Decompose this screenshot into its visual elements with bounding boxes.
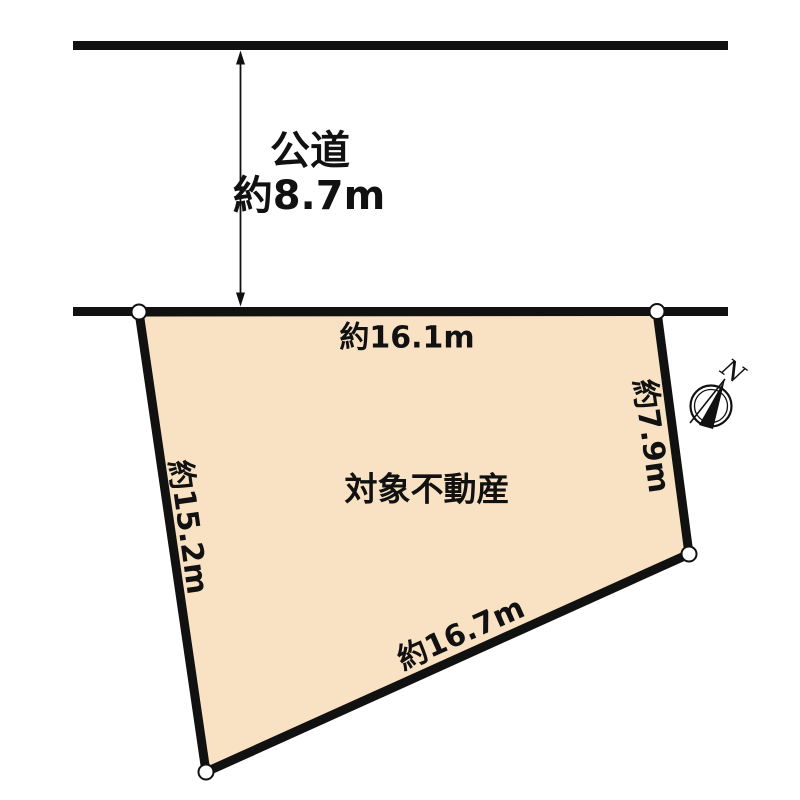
road-width-label: 約8.7m	[233, 173, 386, 219]
plot-diagram: 公道 約8.7m 約16.1m 約7.9m 約15.2m 約16.7m 対象不動…	[0, 0, 800, 800]
road-name-label: 公道	[270, 128, 350, 174]
vertex-dot-bottom-left	[199, 765, 214, 780]
vertex-dot-bottom-right	[682, 547, 697, 562]
plot-diagram-canvas: 公道 約8.7m 約16.1m 約7.9m 約15.2m 約16.7m 対象不動…	[0, 0, 800, 800]
road-width-arrow-head-down-icon	[236, 293, 245, 307]
dimension-label-top: 約16.1m	[339, 321, 474, 356]
road-width-arrow-head-up-icon	[236, 51, 245, 65]
parcel-polygon	[139, 312, 689, 773]
compass-icon: N	[690, 352, 751, 429]
parcel-title-label: 対象不動産	[345, 470, 510, 509]
vertex-dot-top-right	[650, 304, 665, 319]
vertex-dot-top-left	[132, 305, 147, 320]
